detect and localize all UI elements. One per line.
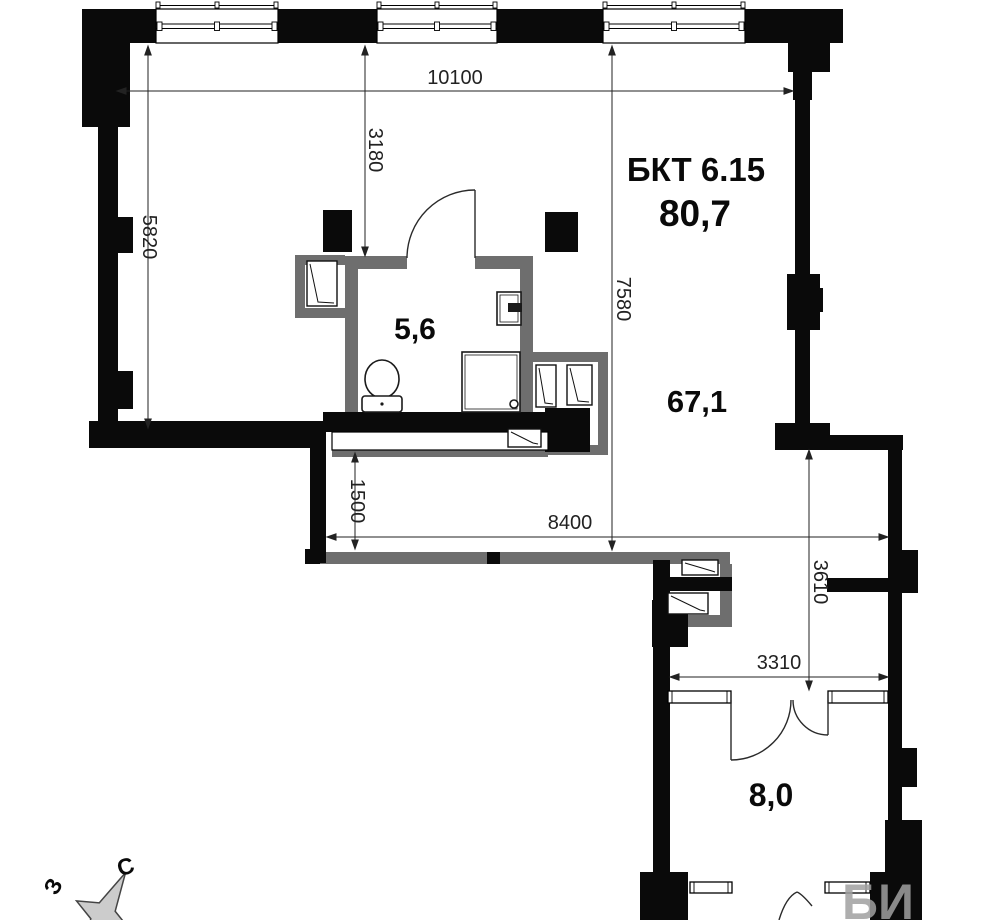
dim-top-width: 10100 <box>427 67 483 89</box>
compass-rose: С З <box>38 851 152 920</box>
lintel-symbol <box>668 691 731 703</box>
sink-icon <box>497 292 522 325</box>
dim-corridor-height: 3610 <box>809 560 831 605</box>
watermark: БИ <box>842 874 914 920</box>
window-symbol <box>377 2 497 43</box>
dim-loggia-depth: 1500 <box>346 479 368 524</box>
vent-shaft-icon <box>668 593 708 614</box>
compass-star-icon <box>53 859 152 920</box>
vent-shaft-icon <box>307 261 337 306</box>
bathroom-door-swing <box>407 190 475 258</box>
fixtures <box>362 292 522 412</box>
compass-north-label: С <box>114 851 138 881</box>
facade-windows <box>156 2 745 43</box>
toilet-icon <box>362 360 402 412</box>
shower-icon <box>462 352 520 412</box>
bathroom-area-label: 5,6 <box>394 313 436 346</box>
compass-west-label: З <box>38 874 68 899</box>
dim-room-width: 3310 <box>757 652 802 674</box>
vent-shaft-icon <box>682 560 718 575</box>
lintel-symbol <box>828 691 888 703</box>
dim-left-height: 5820 <box>138 215 160 260</box>
small-room-area-label: 8,0 <box>749 777 793 813</box>
lintel-symbol <box>690 882 732 893</box>
vent-shaft-icon <box>567 365 592 405</box>
dim-hall-height: 7580 <box>612 277 634 322</box>
vent-shaft-icon <box>536 365 556 407</box>
room-labels: БКТ 6.15 80,7 5,6 67,1 8,0 <box>394 151 793 813</box>
window-symbol <box>156 2 278 43</box>
room-door-swing <box>731 700 828 760</box>
floor-plan: 10100 5820 3180 7580 1500 8400 3610 3310… <box>0 0 1000 920</box>
dim-entry-depth: 3180 <box>364 128 386 173</box>
lower-door-swing <box>779 892 812 920</box>
unit-type-label: БКТ 6.15 <box>627 151 765 188</box>
unit-total-area: 80,7 <box>659 193 731 234</box>
vent-shaft-icon <box>508 429 541 447</box>
living-area-label: 67,1 <box>667 384 727 419</box>
dim-bottom-width: 8400 <box>548 512 593 534</box>
exterior-walls <box>82 9 922 920</box>
window-symbol <box>603 2 745 43</box>
